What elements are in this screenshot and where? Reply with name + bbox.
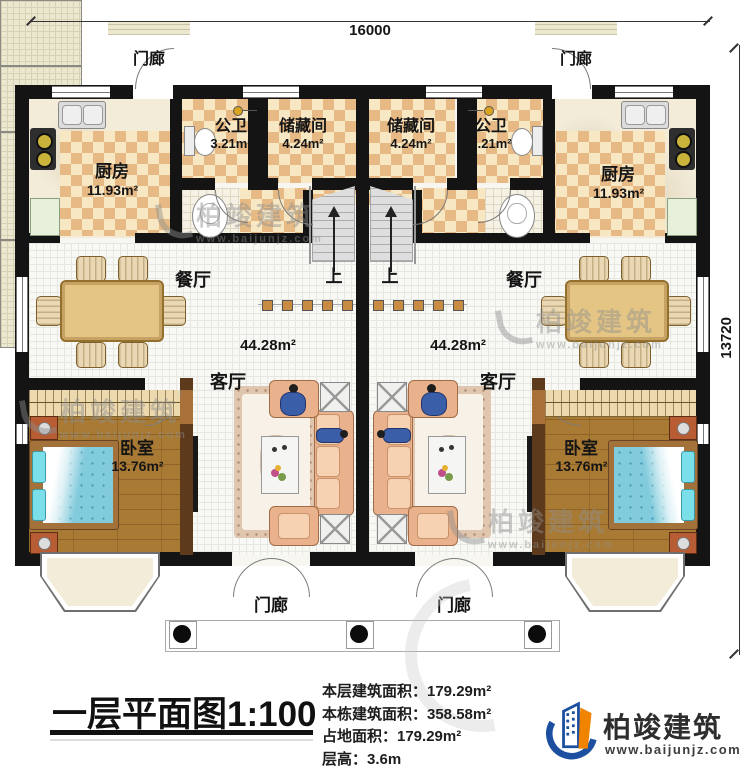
wall-seg (510, 178, 543, 190)
dimension-line-right (739, 45, 740, 655)
sofa-cushion (387, 446, 411, 477)
lamp (38, 422, 51, 435)
remote (439, 447, 444, 452)
room-area-kitchen-left: 11.93m² (65, 183, 160, 198)
lamp (677, 537, 690, 550)
footer-title-underline (50, 730, 313, 735)
brand-logo: 柏竣建筑 www.baijunjz.com (543, 698, 743, 764)
wall-kitchen-bath-left (170, 99, 182, 243)
sofa-cushion (387, 478, 411, 509)
nightstand (669, 532, 697, 554)
bay-window-right (565, 552, 685, 612)
stair-arrow-head (328, 200, 340, 217)
side-table (320, 382, 350, 412)
sofa-cushion (417, 513, 449, 539)
footer-stats: 本层建筑面积：179.29m² 本栋建筑面积：358.58m² 占地面积：179… (322, 681, 491, 771)
stove-left (30, 128, 56, 170)
wardrobe-rod (29, 402, 180, 403)
kitchen-sink-right (621, 101, 669, 129)
dimension-top-label: 16000 (330, 23, 410, 39)
wardrobe-right (545, 390, 696, 417)
window (697, 424, 709, 444)
wall-bedroom-top-left (15, 378, 145, 390)
burner (36, 133, 53, 150)
screen-post (302, 300, 313, 311)
remote (272, 447, 277, 452)
stat-line-floor-area: 本层建筑面积：179.29m² (322, 681, 491, 704)
room-area-kitchen-right: 11.93m² (571, 186, 666, 201)
dimension-right-label: 13720 (719, 303, 735, 373)
dining-chair (579, 256, 609, 282)
pillow (32, 451, 46, 483)
wall-seg (412, 233, 590, 243)
room-label-porch-top-left: 门廊 (113, 52, 185, 69)
flower-decor (275, 465, 281, 471)
window (16, 277, 28, 352)
screen-post (413, 300, 424, 311)
screen-post (342, 300, 353, 311)
room-area-bathroom-left: 3.21m² (203, 137, 259, 151)
dimension-tick (729, 649, 739, 659)
dining-chair (76, 256, 106, 282)
toilet (532, 126, 543, 156)
remote (449, 445, 454, 450)
dining-chair (118, 256, 148, 282)
column-pillar (350, 625, 368, 643)
brand-name: 柏竣建筑 (603, 706, 723, 746)
screen-post (282, 300, 293, 311)
wall-bedroom-top-right (580, 378, 710, 390)
screen-post (322, 300, 333, 311)
flower-decor (445, 473, 453, 481)
footer-title-underline-light (50, 739, 313, 741)
room-label-porch-top-right: 门廊 (540, 52, 612, 69)
stair-arrow-head (385, 200, 397, 217)
person (421, 392, 447, 416)
burner (675, 133, 692, 150)
porch-column (346, 621, 374, 649)
light-line (468, 110, 483, 111)
tv-left (193, 436, 198, 512)
pillow (681, 489, 695, 521)
room-label-living-right: 客厅 (471, 373, 525, 392)
screen-post (393, 300, 404, 311)
stove-right (669, 128, 695, 170)
sofa-cushion (316, 446, 340, 477)
sofa-cushion (278, 513, 310, 539)
room-label-storage-left: 储藏间 (266, 119, 340, 136)
wall-seg (248, 178, 278, 190)
bed-right (608, 440, 698, 530)
screen-post (373, 300, 384, 311)
room-label-bedroom-right: 卧室 (546, 440, 616, 458)
kitchen-sink-left (58, 101, 106, 129)
wall-bottom-seg (155, 552, 232, 566)
coffee-table-right (428, 436, 466, 494)
light-line (242, 110, 257, 111)
screen-post (453, 300, 464, 311)
room-area-bathroom-right: 3.21m² (463, 137, 519, 151)
fridge-left (30, 198, 60, 236)
dining-chair (36, 296, 62, 326)
lamp (38, 537, 51, 550)
brand-logo-icon (543, 698, 599, 760)
room-label-living-left: 客厅 (201, 373, 255, 392)
side-table (377, 382, 407, 412)
dining-table-right (565, 280, 669, 342)
burner (675, 151, 692, 168)
side-table (377, 514, 407, 544)
person (383, 428, 411, 443)
room-area-storage-right: 4.24m² (383, 137, 439, 151)
stat-line-footprint-area: 占地面积：179.29m² (322, 726, 491, 749)
person (340, 430, 348, 438)
room-label-bathroom-left: 公卫 (206, 119, 256, 136)
sink-bowl (646, 105, 666, 125)
room-label-bathroom-right: 公卫 (466, 119, 516, 136)
dining-chair (621, 342, 651, 368)
dimension-tick (729, 43, 739, 53)
armchair (269, 506, 319, 546)
stat-line-building-area: 本栋建筑面积：358.58m² (322, 704, 491, 727)
column-pillar (173, 625, 191, 643)
wardrobe-left (29, 390, 180, 417)
window (16, 424, 28, 444)
burner (36, 151, 53, 168)
porch-top-left (0, 0, 82, 66)
person (377, 430, 385, 438)
wardrobe-rod (545, 402, 696, 403)
window (243, 86, 299, 98)
room-label-storage-right: 储藏间 (374, 119, 448, 136)
light-fixture (484, 106, 494, 116)
porch-eaves (108, 22, 190, 35)
room-label-kitchen-left: 厨房 (77, 163, 147, 181)
dining-chair (621, 256, 651, 282)
dining-chair (541, 296, 567, 326)
remote (282, 445, 287, 450)
stair-arrow-line (390, 210, 392, 272)
floor-plan-canvas: 16000 13720 (0, 0, 750, 776)
wall-center (356, 85, 369, 566)
stairs-up-left: 上 (324, 268, 344, 286)
bed-sheet (614, 447, 684, 523)
wall-seg (182, 178, 215, 190)
room-area-bedroom-left: 13.76m² (100, 459, 175, 474)
bay-window-left (40, 552, 160, 612)
hall-area-left: 44.28m² (230, 338, 306, 354)
sink-bowl (625, 105, 645, 125)
room-label-bedroom-left: 卧室 (102, 440, 172, 458)
wall-seg (135, 233, 313, 243)
bedroom-door-leaf-right (532, 390, 545, 424)
coffee-table-left (261, 436, 299, 494)
brand-url: www.baijunjz.com (605, 742, 741, 757)
room-label-dining-left: 餐厅 (166, 271, 220, 290)
wall-bottom-seg (310, 552, 415, 566)
side-table (320, 514, 350, 544)
room-label-kitchen-right: 厨房 (583, 166, 653, 184)
window (697, 277, 709, 352)
tv-right (527, 436, 532, 512)
sink-bowl (83, 105, 103, 125)
bedroom-door-leaf-left (180, 390, 193, 424)
dining-table-left (60, 280, 164, 342)
stairs-up-right: 上 (380, 268, 400, 286)
flower-decor (278, 473, 286, 481)
room-label-porch-bottom-left: 门廊 (241, 597, 301, 615)
person (280, 392, 306, 416)
room-area-storage-left: 4.24m² (275, 137, 331, 151)
window (615, 86, 673, 98)
stat-line-storey-height: 层高：3.6m (322, 749, 491, 772)
sink-bowl (62, 105, 82, 125)
wall-seg (447, 178, 477, 190)
sofa-cushion (316, 478, 340, 509)
stair-arrow-line (333, 210, 335, 272)
dining-chair (118, 342, 148, 368)
porch-column (169, 621, 197, 649)
fridge-right (667, 198, 697, 236)
window (426, 86, 482, 98)
window (52, 86, 110, 98)
flower-decor (442, 465, 448, 471)
bay-interior (572, 558, 678, 606)
dining-chair (579, 342, 609, 368)
nightstand (669, 416, 697, 440)
armchair (408, 506, 458, 546)
dining-chair (76, 342, 106, 368)
light-fixture (233, 106, 243, 116)
lamp (677, 422, 690, 435)
bay-interior (47, 558, 153, 606)
screen-post (433, 300, 444, 311)
room-label-dining-right: 餐厅 (497, 271, 551, 290)
nightstand (30, 416, 58, 440)
wall-kitchen-bath-right (543, 99, 555, 243)
nightstand (30, 532, 58, 554)
pillow (681, 451, 695, 483)
room-area-bedroom-right: 13.76m² (544, 459, 619, 474)
hall-area-right: 44.28m² (420, 338, 496, 354)
screen-post (262, 300, 273, 311)
pillow (32, 489, 46, 521)
porch-eaves (535, 22, 617, 35)
